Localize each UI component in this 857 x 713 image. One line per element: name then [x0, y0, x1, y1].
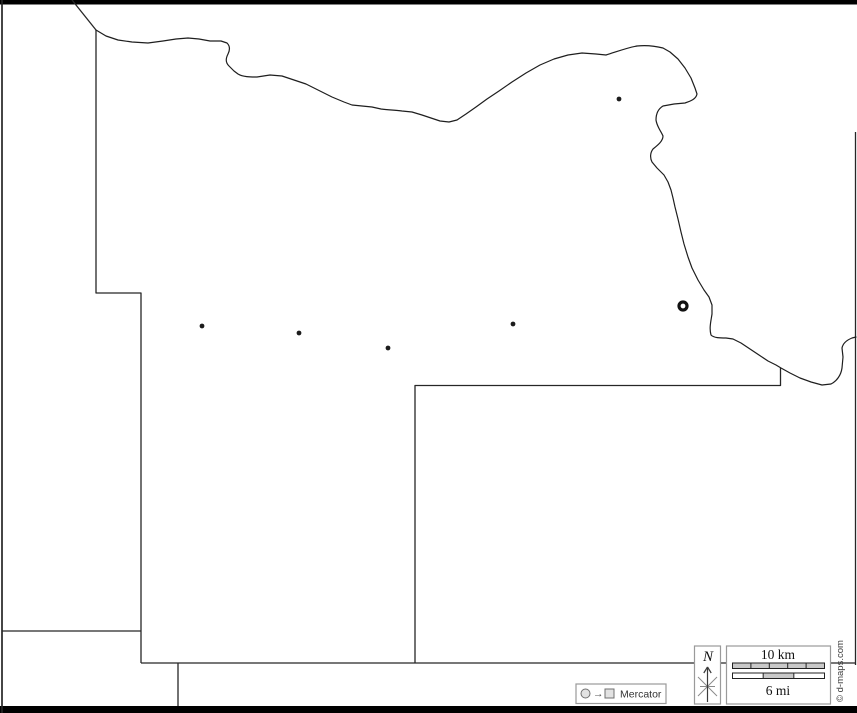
neatline-bottom [0, 706, 857, 713]
scale-mi-label: 6 mi [766, 683, 791, 698]
map-stage: N 10 km 6 mi → Mercator © d-maps.com [0, 0, 857, 713]
neatline-top [0, 0, 857, 5]
projection-arrow-icon: → [593, 688, 604, 700]
scale-mi-bar [733, 673, 825, 679]
scale-km-bar [733, 663, 825, 669]
map-canvas: N 10 km 6 mi → Mercator © d-maps.com [0, 0, 857, 713]
city-dots [200, 97, 622, 351]
city-dot [200, 324, 205, 329]
county-seat-marker [679, 302, 687, 310]
city-dot [617, 97, 622, 102]
city-dot [297, 331, 302, 336]
river-boundary-north [96, 30, 856, 385]
boundary-notch [415, 368, 781, 663]
scale-km-label: 10 km [761, 647, 796, 662]
city-dot [386, 346, 391, 351]
city-dot [511, 322, 516, 327]
projection-square-icon [605, 689, 614, 698]
credit-watermark: © d-maps.com [835, 640, 846, 702]
north-label: N [702, 649, 714, 665]
projection-label: Mercator [620, 689, 662, 701]
boundary-west [96, 30, 141, 663]
projection-circle-icon [581, 689, 590, 698]
